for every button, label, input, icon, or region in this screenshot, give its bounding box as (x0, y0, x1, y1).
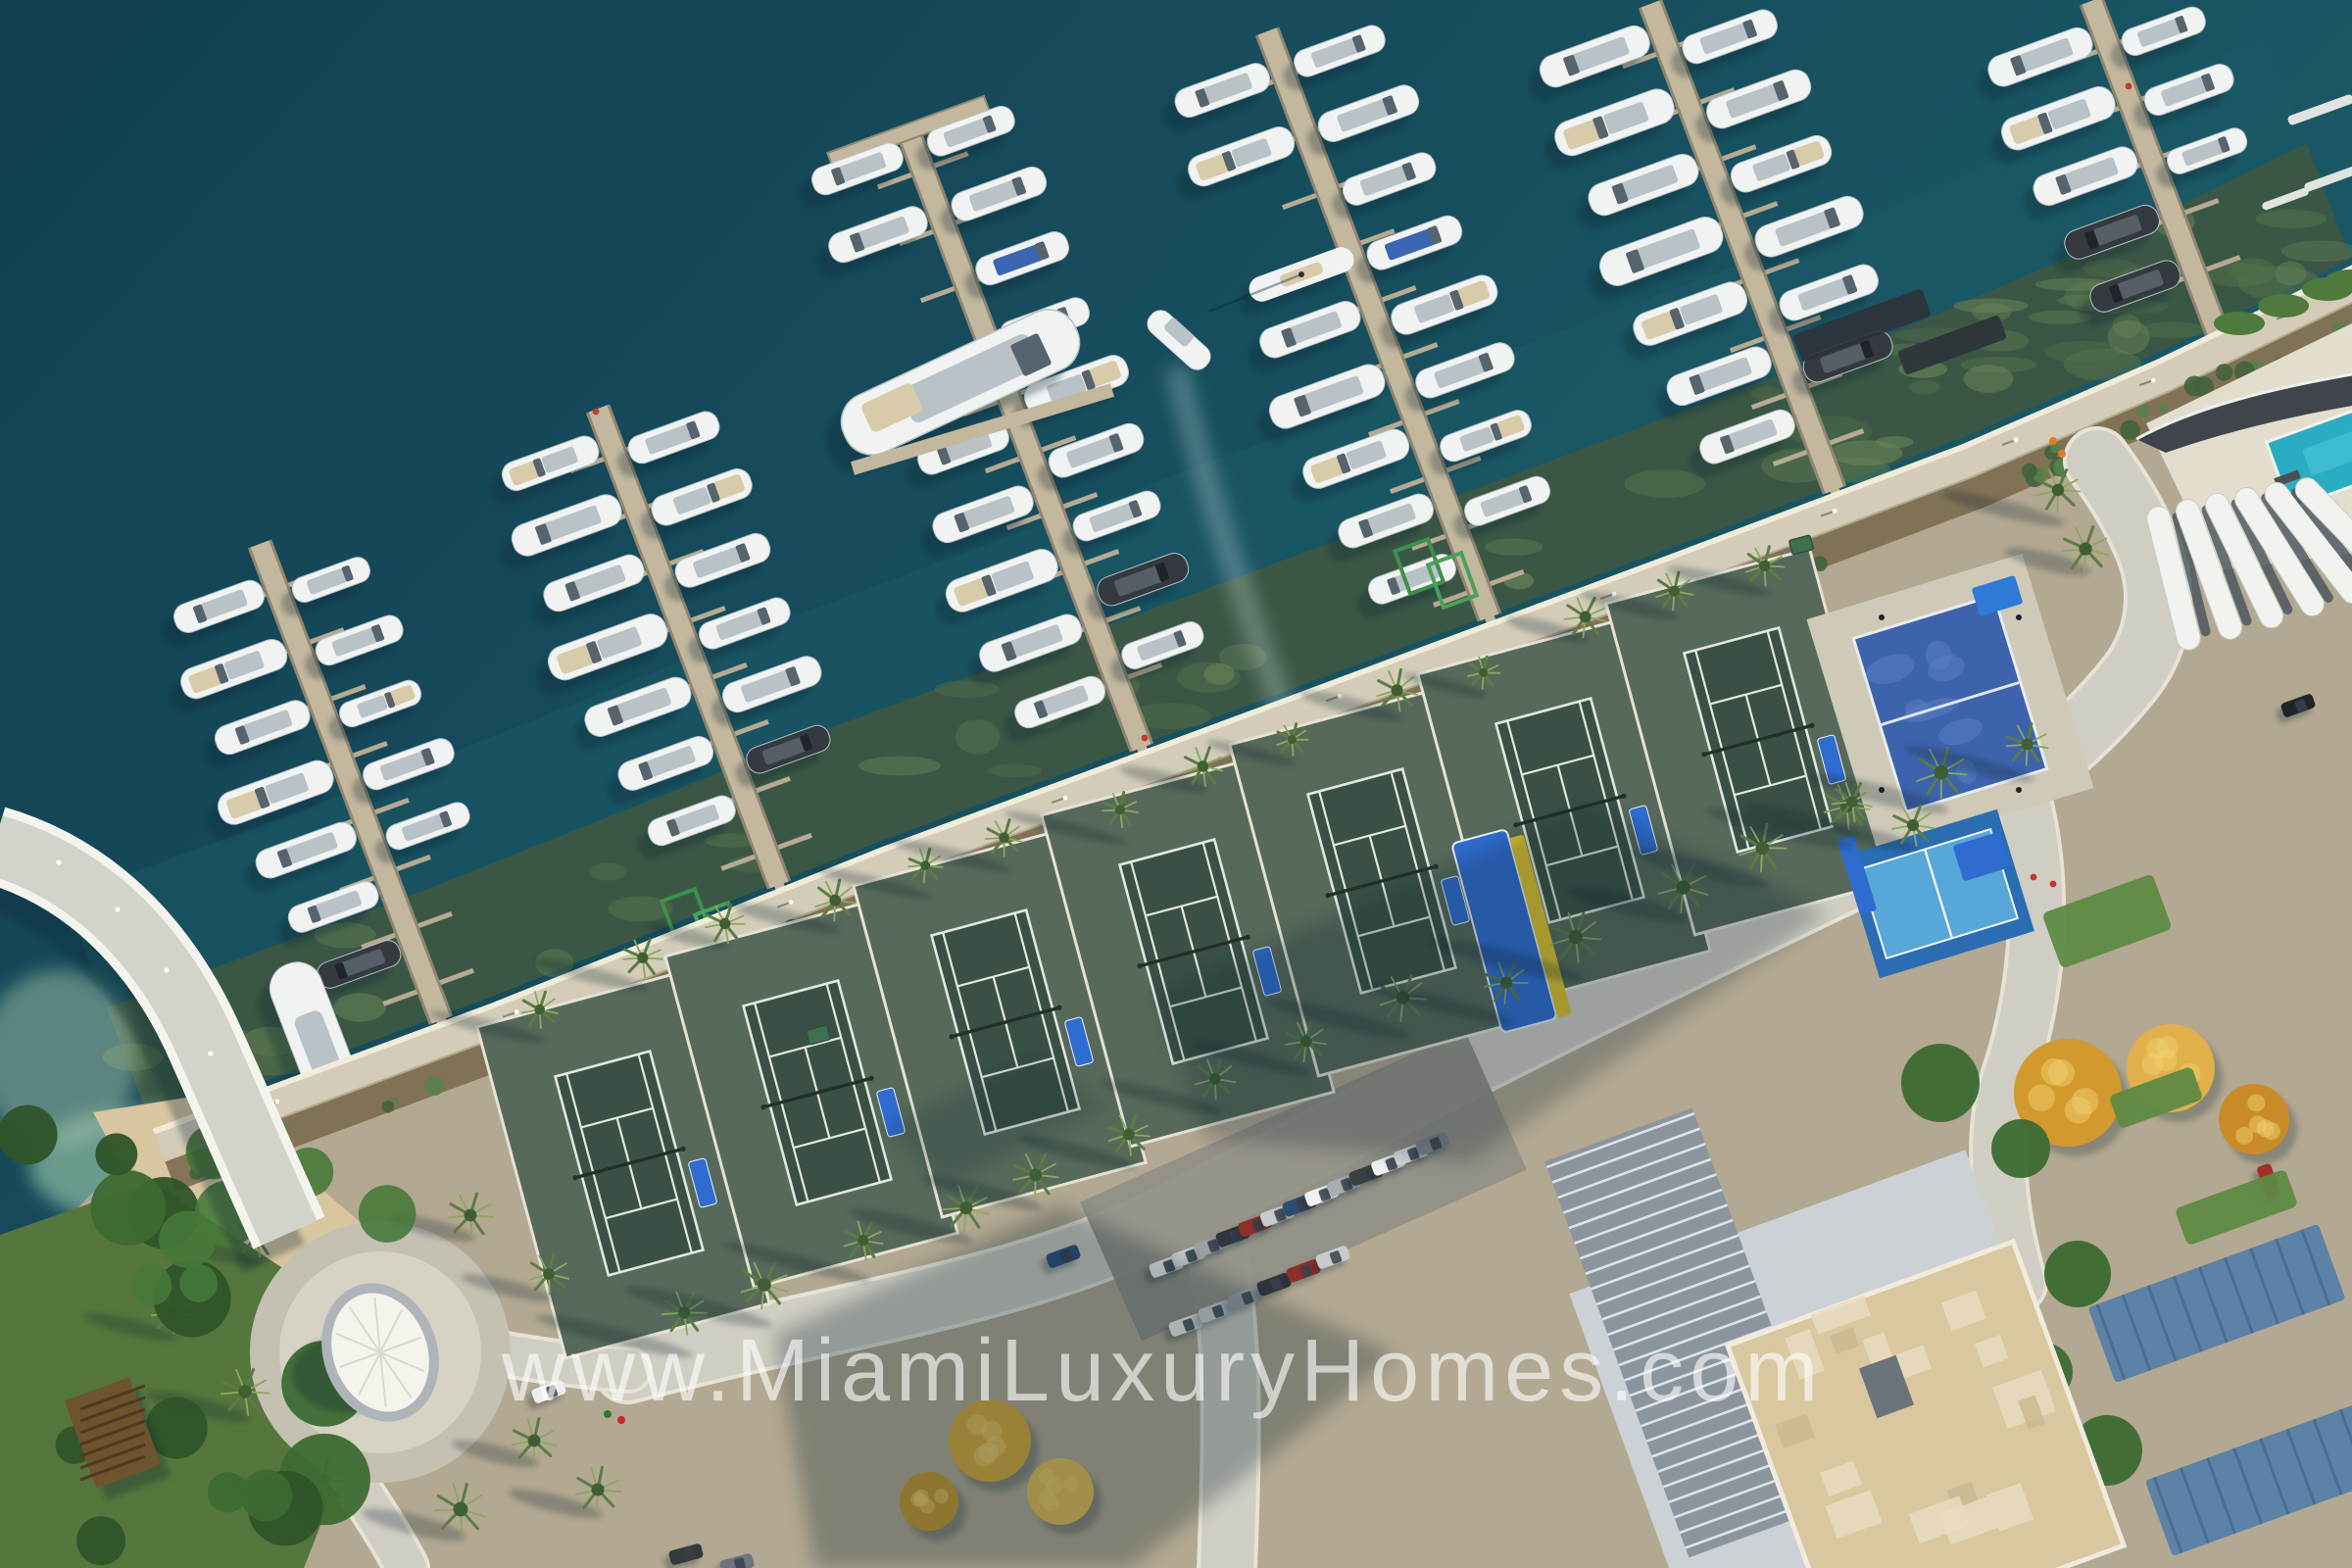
aerial-photo-miami-marina: www.MiamiLuxuryHomes.com (0, 0, 2352, 1568)
scene-canvas (0, 0, 2352, 1568)
